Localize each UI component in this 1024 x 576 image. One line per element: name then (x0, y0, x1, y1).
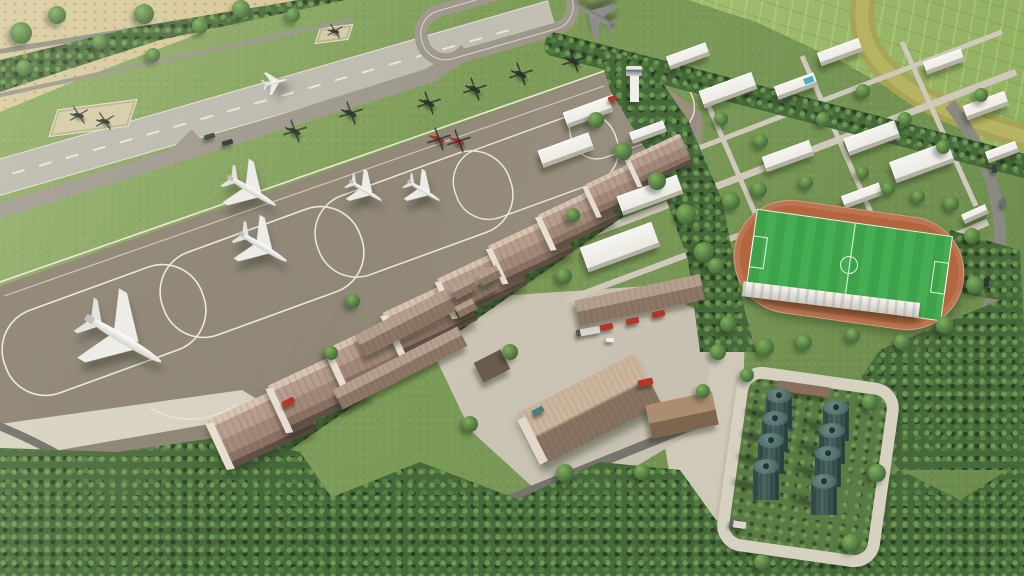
tree-canopy (846, 328, 860, 342)
tree-canopy (588, 112, 604, 128)
tree-canopy (856, 166, 869, 179)
tree-canopy (556, 268, 572, 284)
tree-canopy (816, 112, 830, 126)
tree-canopy (648, 172, 666, 190)
tree-canopy (936, 140, 950, 154)
tree-canopy (286, 8, 300, 22)
tree-canopy (800, 176, 813, 189)
tree-canopy (722, 192, 740, 210)
tree-canopy (134, 4, 154, 24)
control-tower-cab (626, 66, 642, 76)
penalty-box (749, 235, 768, 269)
tree-canopy (964, 228, 980, 244)
car (992, 164, 997, 173)
tree-canopy (752, 182, 767, 197)
car (1001, 198, 1006, 207)
fuel-tank (753, 459, 779, 501)
control-tower (630, 74, 639, 102)
tree-canopy (710, 344, 726, 360)
tree-canopy (146, 48, 160, 62)
car (984, 278, 989, 287)
tree-canopy (842, 534, 860, 552)
tree-canopy (912, 190, 925, 203)
tree-canopy (16, 60, 32, 76)
tree-canopy (966, 276, 984, 294)
tree-canopy (862, 394, 878, 410)
swimming-pool (803, 76, 814, 85)
tree-canopy (556, 464, 574, 482)
car (606, 338, 614, 342)
tree-canopy (898, 112, 912, 126)
center-circle (839, 255, 859, 275)
tree-canopy (714, 112, 728, 126)
tree-canopy (754, 134, 768, 148)
tree-canopy (502, 344, 518, 360)
tree-canopy (882, 182, 895, 195)
tree-canopy (708, 258, 724, 274)
tree-canopy (696, 384, 710, 398)
penalty-box (930, 261, 949, 295)
tree-canopy (756, 338, 774, 356)
tree-canopy (92, 34, 108, 50)
tree-canopy (868, 464, 886, 482)
tree-canopy (974, 88, 988, 102)
tree-canopy (232, 0, 250, 18)
tree-canopy (856, 84, 870, 98)
tree-canopy (944, 196, 959, 211)
fuel-tank (811, 474, 837, 516)
tree-canopy (48, 6, 66, 24)
tree-canopy (720, 316, 736, 332)
tree-canopy (796, 334, 812, 350)
tree-canopy (740, 368, 754, 382)
airbase-aerial-render (0, 0, 1024, 576)
tree-canopy (324, 346, 338, 360)
tree-canopy (676, 204, 696, 224)
tree-canopy (566, 208, 580, 222)
tree-canopy (192, 18, 208, 34)
tree-canopy (346, 294, 360, 308)
tree-canopy (634, 464, 650, 480)
tree-canopy (754, 554, 770, 570)
tree-canopy (614, 142, 632, 160)
tree-canopy (10, 22, 32, 44)
tree-canopy (462, 416, 478, 432)
tree-canopy (894, 334, 910, 350)
tree-canopy (936, 316, 954, 334)
